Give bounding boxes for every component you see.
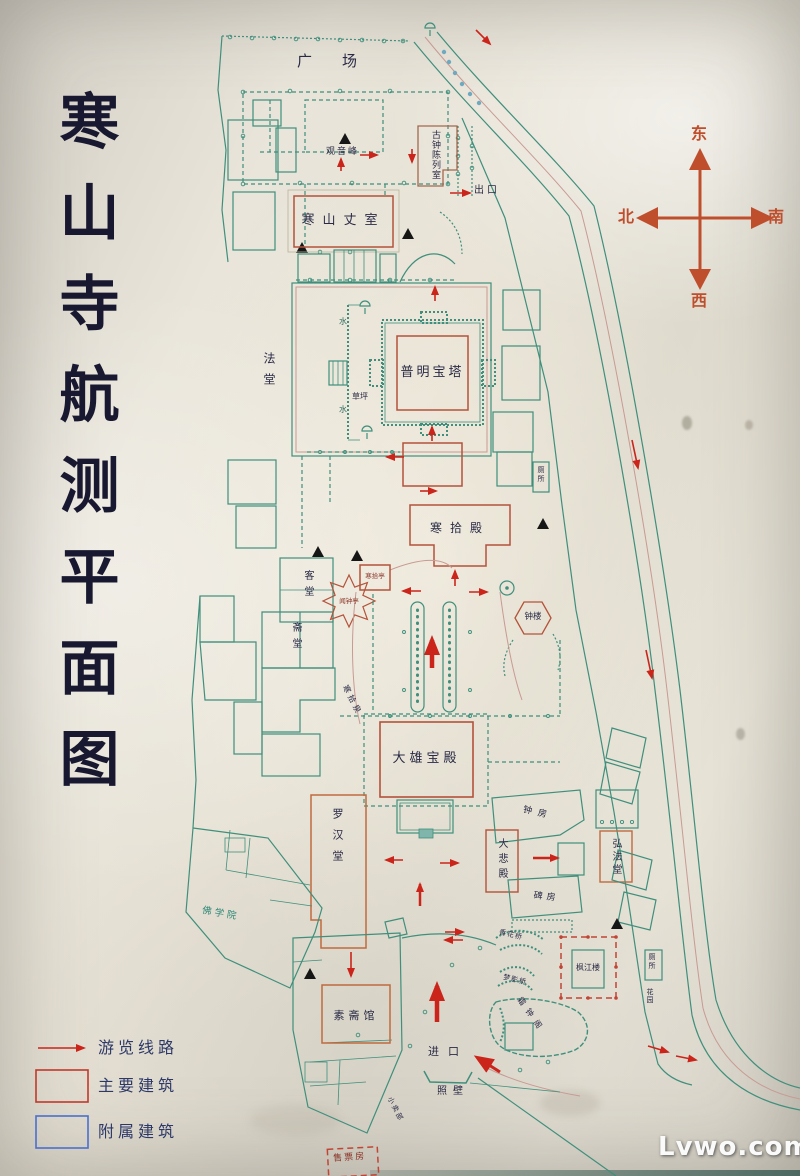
hanshi-hall-outline bbox=[390, 505, 510, 570]
label-veg-restaurant: 素斋馆 bbox=[322, 1010, 390, 1021]
label-bell-tower: 钟楼 bbox=[518, 613, 548, 622]
west-halls bbox=[192, 460, 363, 828]
arhat-hall-outline bbox=[311, 795, 407, 948]
compass-rose bbox=[636, 148, 774, 290]
label-water-upper: 水 bbox=[339, 318, 347, 326]
label-hongfa-hall: 弘法堂 bbox=[610, 838, 620, 877]
tree-icon bbox=[362, 426, 372, 439]
legend-route-label: 游览线路 bbox=[98, 1040, 178, 1056]
label-dharma-hall: 法堂 bbox=[263, 352, 275, 394]
bell-tower-outline bbox=[500, 581, 560, 676]
legend-symbols bbox=[36, 1048, 88, 1148]
tree-icon bbox=[360, 301, 370, 314]
east-halls bbox=[486, 728, 656, 932]
label-toilet-south: 厕所 bbox=[648, 953, 655, 971]
compass-east-label: 东 bbox=[691, 126, 707, 142]
label-arhat-hall: 罗汉堂 bbox=[332, 808, 343, 871]
mahavira-outline bbox=[380, 722, 473, 838]
label-toilet-north: 厕所 bbox=[537, 466, 544, 484]
label-screen-wall: 照壁 bbox=[437, 1087, 469, 1097]
watermark: Lvwo.com bbox=[658, 1134, 800, 1160]
abbot-room-block bbox=[288, 190, 462, 282]
map-photo: 寒山寺航测平面图 东 北 南 西 广场 观音峰 古钟陈列室 出口 寒山丈室 法堂… bbox=[0, 0, 800, 1176]
label-fengjiang-tower: 枫江楼 bbox=[572, 964, 604, 972]
label-hanshi-hall: 寒拾殿 bbox=[410, 522, 510, 534]
label-lawn: 草坪 bbox=[352, 393, 368, 401]
page-title: 寒山寺航测平面图 bbox=[54, 90, 114, 818]
label-hanshi-pavilion: 寒拾亭 bbox=[361, 573, 389, 580]
legend-aux-building-label: 附属建筑 bbox=[98, 1124, 178, 1140]
label-wenzhong-pavilion: 闻钟亭 bbox=[334, 598, 364, 605]
compass-south-label: 南 bbox=[768, 209, 784, 225]
road bbox=[414, 32, 800, 1176]
label-guest-hall: 客堂 bbox=[302, 570, 312, 602]
label-hanshan-abbot: 寒山丈室 bbox=[294, 214, 393, 227]
label-puming-pagoda: 普明宝塔 bbox=[397, 366, 468, 379]
label-guanyin-peak: 观音峰 bbox=[326, 148, 359, 157]
tour-route-arrows bbox=[341, 30, 696, 1072]
site-plan-drawing bbox=[0, 0, 800, 1176]
label-entrance: 进口 bbox=[428, 1046, 468, 1057]
legend-main-building-label: 主要建筑 bbox=[98, 1078, 178, 1094]
label-mahavira-hall: 大雄宝殿 bbox=[380, 752, 473, 765]
label-plaza: 广场 bbox=[297, 54, 387, 69]
tree-icon bbox=[425, 23, 435, 36]
label-exit: 出口 bbox=[474, 186, 500, 196]
label-dining-hall: 斋堂 bbox=[290, 622, 300, 654]
label-dabei-hall: 大悲殿 bbox=[496, 838, 506, 883]
southwest-cluster bbox=[186, 828, 402, 1176]
compass-west-label: 西 bbox=[691, 293, 707, 309]
label-water-lower: 水 bbox=[339, 406, 347, 414]
compass-north-label: 北 bbox=[618, 209, 634, 225]
label-ancient-bell-room: 古钟陈列室 bbox=[430, 130, 439, 180]
label-garden: 花园 bbox=[646, 988, 653, 1004]
